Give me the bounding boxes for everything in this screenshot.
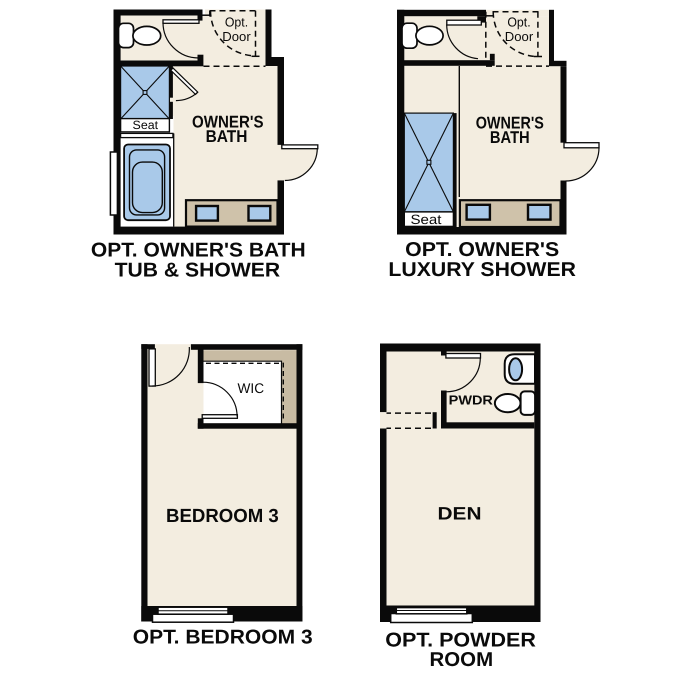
svg-text:OPT. BEDROOM 3: OPT. BEDROOM 3 <box>133 626 313 648</box>
svg-text:TUB & SHOWER: TUB & SHOWER <box>115 260 281 282</box>
svg-text:BATH: BATH <box>490 128 530 147</box>
svg-text:Seat: Seat <box>411 212 442 227</box>
svg-text:BEDROOM 3: BEDROOM 3 <box>166 506 279 527</box>
svg-text:DEN: DEN <box>438 504 482 524</box>
svg-text:OPT. OWNER'S: OPT. OWNER'S <box>405 239 559 261</box>
svg-text:WIC: WIC <box>238 380 265 396</box>
svg-text:OPT. OWNER'S BATH: OPT. OWNER'S BATH <box>91 240 306 262</box>
svg-text:Seat: Seat <box>133 118 159 132</box>
svg-text:LUXURY SHOWER: LUXURY SHOWER <box>388 259 576 281</box>
svg-text:PWDR: PWDR <box>449 392 494 407</box>
svg-text:Door: Door <box>505 29 534 44</box>
svg-text:Door: Door <box>222 29 251 44</box>
svg-text:ROOM: ROOM <box>430 649 494 671</box>
svg-text:Opt.: Opt. <box>507 15 530 30</box>
svg-text:Opt.: Opt. <box>225 15 248 30</box>
svg-text:BATH: BATH <box>206 127 248 146</box>
